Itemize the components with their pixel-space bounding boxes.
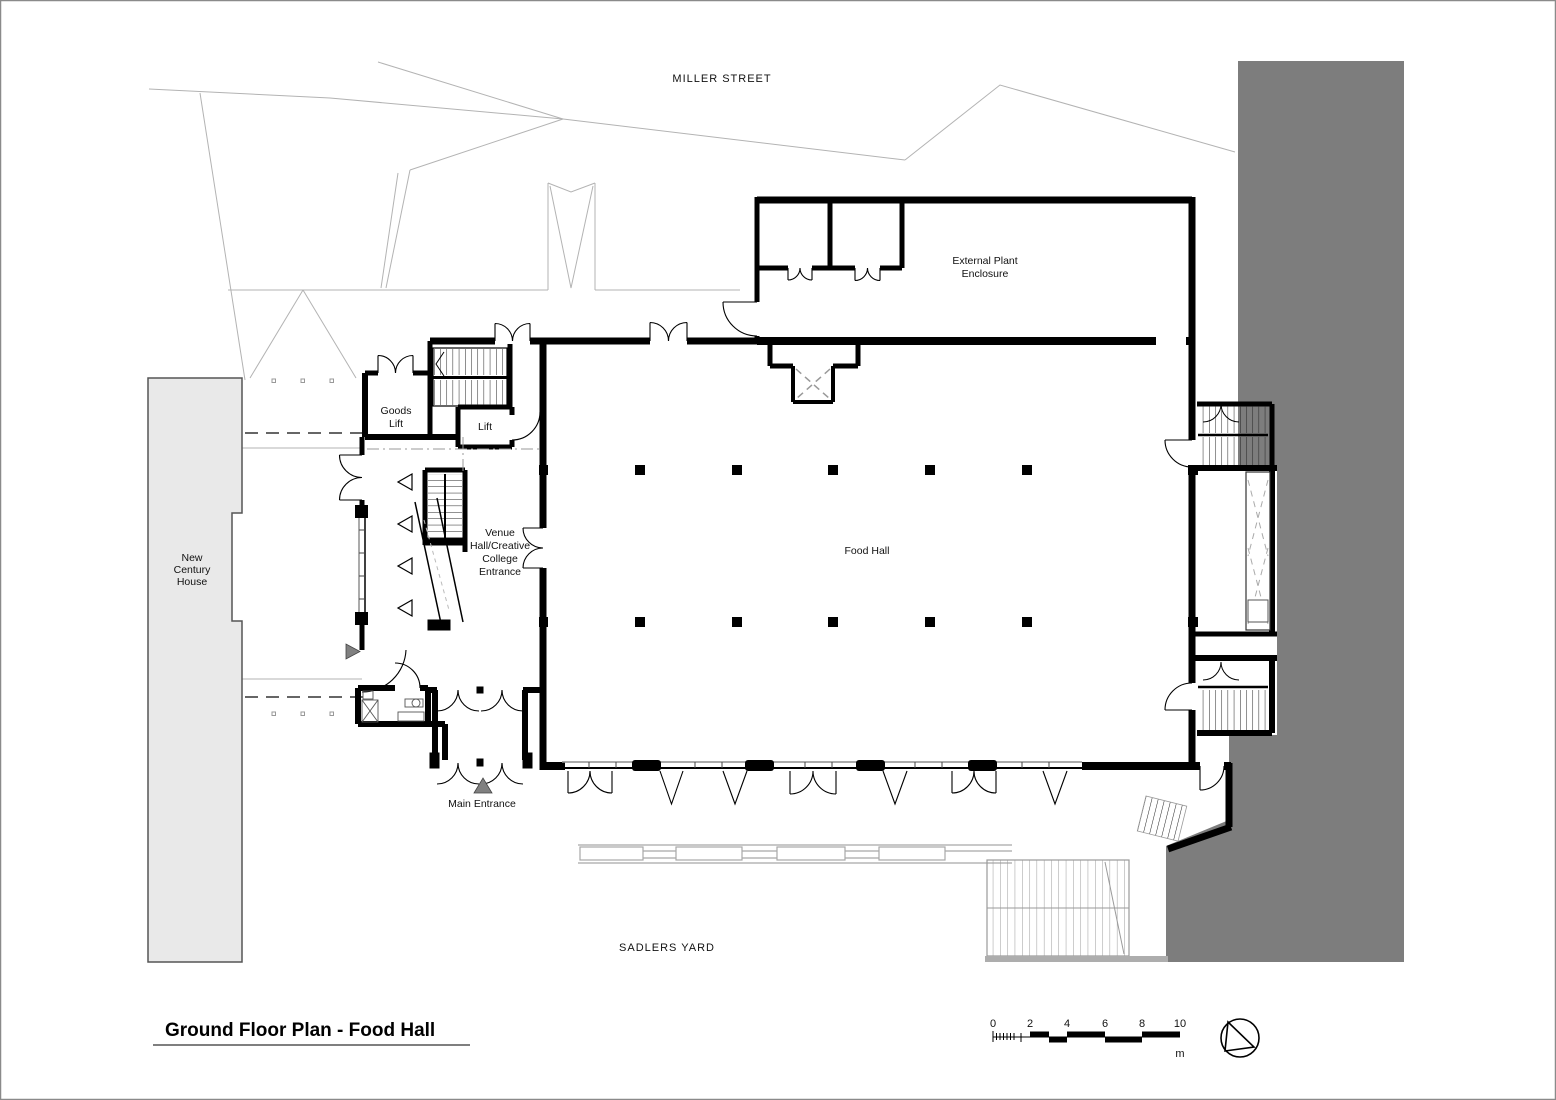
label-goods-lift-1: Goods [381, 405, 412, 417]
scale-tick-0: 0 [990, 1018, 996, 1030]
floor-plan-sheet: MILLER STREET SADLERS YARD External Plan… [0, 0, 1556, 1100]
drawing-title: Ground Floor Plan - Food Hall [165, 1020, 435, 1041]
scale-tick-6: 6 [1102, 1018, 1108, 1030]
label-venue-4: Entrance [479, 566, 521, 578]
scale-unit: m [1175, 1048, 1184, 1060]
label-goods-lift-2: Lift [389, 418, 403, 430]
scale-tick-10: 10 [1174, 1018, 1186, 1030]
north-stair [433, 348, 507, 406]
mid-stair [428, 474, 462, 540]
label-nch-2: Century [174, 564, 212, 576]
label-external-plant-2: Enclosure [962, 268, 1009, 280]
label-venue-1: Venue [485, 527, 515, 539]
scale-tick-4: 4 [1064, 1018, 1070, 1030]
label-nch-1: New [181, 552, 202, 564]
east-stair-upper [1198, 404, 1268, 465]
new-century-house-outline [148, 378, 242, 962]
label-sadlers-yard: SADLERS YARD [619, 942, 715, 954]
scale-tick-8: 8 [1139, 1018, 1145, 1030]
label-venue-2: Hall/Creative [470, 540, 530, 552]
label-food-hall: Food Hall [845, 545, 890, 557]
label-miller-street: MILLER STREET [672, 73, 771, 85]
east-riser-shaft [1246, 472, 1270, 630]
label-venue-3: College [482, 553, 518, 565]
window-gap [1156, 335, 1186, 346]
label-nch-3: House [177, 576, 208, 588]
label-external-plant-1: External Plant [952, 255, 1017, 267]
scale-tick-2: 2 [1027, 1018, 1033, 1030]
label-lift: Lift [478, 421, 492, 433]
label-main-entrance: Main Entrance [448, 798, 516, 810]
floor-plan-drawing: MILLER STREET SADLERS YARD External Plan… [0, 0, 1556, 1100]
